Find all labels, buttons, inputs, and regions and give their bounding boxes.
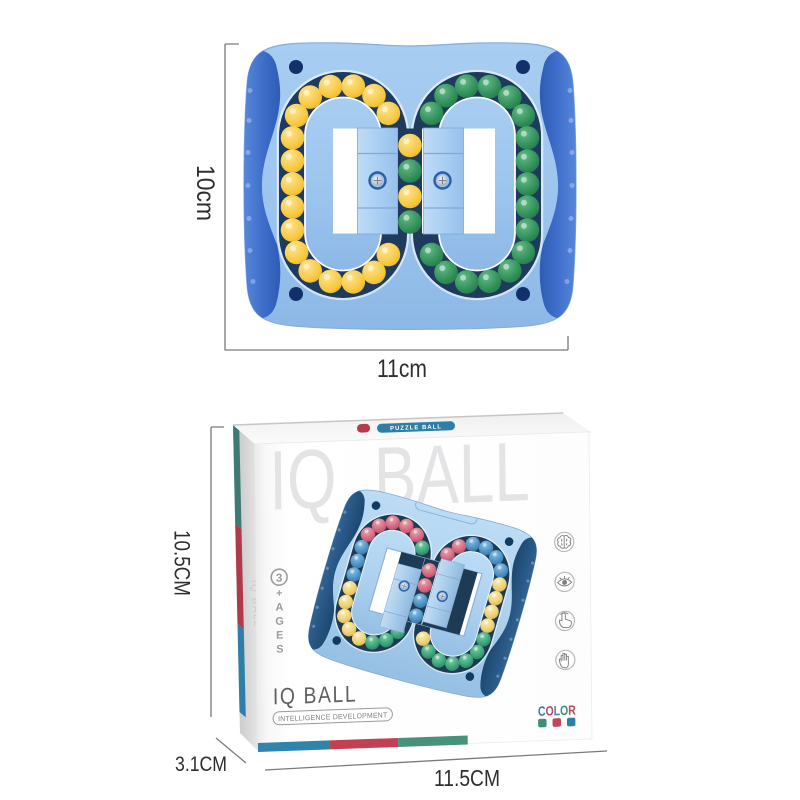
svg-text:IQ BALL: IQ BALL (273, 680, 358, 709)
svg-text:E: E (276, 630, 283, 642)
svg-text:11.5CM: 11.5CM (434, 765, 500, 791)
svg-text:A: A (275, 602, 283, 614)
svg-text:COLOR: COLOR (538, 703, 576, 719)
svg-text:3: 3 (276, 573, 282, 585)
svg-text:G: G (275, 616, 284, 628)
svg-text:10.5CM: 10.5CM (170, 530, 195, 596)
svg-text:3.1CM: 3.1CM (175, 753, 227, 776)
svg-text:S: S (276, 644, 283, 656)
svg-text:10cm: 10cm (191, 165, 219, 221)
svg-text:+: + (276, 588, 283, 600)
svg-text:11cm: 11cm (377, 355, 427, 383)
